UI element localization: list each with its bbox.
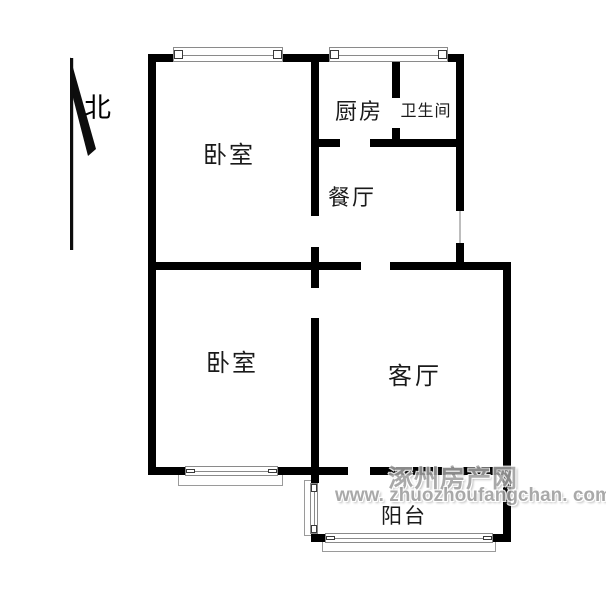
window-pane-line [174,55,282,56]
room-label-dining: 餐厅 [328,180,376,212]
window-end [311,525,317,533]
room-label-bedroom-top: 卧室 [203,135,255,170]
wall-bathroom-divider-lower [392,128,400,147]
room-label-bedroom-bottom: 卧室 [206,343,258,378]
wall-bathroom-divider-upper [392,62,400,98]
wall-middle-vertical-lower [311,318,319,483]
window-end [483,536,492,540]
watermark-site-url: www. zhuozhoufangchan. com [335,485,606,507]
window-pane-line [326,538,492,539]
window-end [326,536,335,540]
bedroom-top-window [173,47,283,62]
window-end [268,469,277,473]
room-label-bathroom: 卫生间 [400,97,451,121]
window-end [330,50,339,59]
kitchen-window [329,47,448,62]
window-end [311,484,317,492]
wall-living-north-right [390,262,511,270]
room-label-kitchen: 厨房 [335,94,383,126]
balcony-south-window [325,533,493,543]
wall-kitchen-south-left [311,139,340,147]
north-label: 北 [84,86,111,125]
wall-kitchen-south-right [370,139,464,147]
wall-bedrooms-divider-left [148,262,361,270]
dining-east-window [459,211,461,243]
window-end [438,50,447,59]
balcony-west-window [310,483,318,534]
window-pane-line [330,55,447,56]
window-end [174,50,183,59]
wall-dining-east-lower [456,243,464,270]
floorplan-canvas: 北 卧室 卧室 厨房 卫生间 餐厅 客厅 阳台 涿州房产网 www. zhuoz… [0,0,606,600]
wall-middle-vertical-mid [311,247,319,288]
bedroom-bottom-window [185,466,278,476]
room-label-living: 客厅 [388,356,442,391]
window-pane-line [186,471,277,472]
wall-dining-east-upper [456,54,464,211]
window-end [273,50,282,59]
window-end [186,469,195,473]
